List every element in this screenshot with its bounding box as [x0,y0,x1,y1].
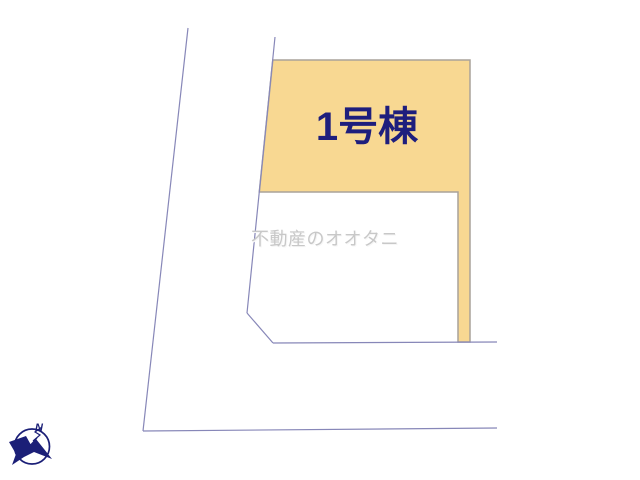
lot-boundary-chamfer-line [247,313,273,343]
compass-bird-icon [9,436,52,465]
road-edge-middle-line [273,342,497,343]
site-plan-canvas: N 1号棟 不動産のオオタニ [0,0,640,480]
watermark-text: 不動産のオオタニ [251,228,399,250]
lot-1-label: 1号棟 [297,103,437,151]
compass-north-label: N [35,422,44,434]
road-boundary-left-line [143,28,188,431]
compass-rose: N [9,422,52,465]
road-edge-bottom-line [143,428,497,431]
